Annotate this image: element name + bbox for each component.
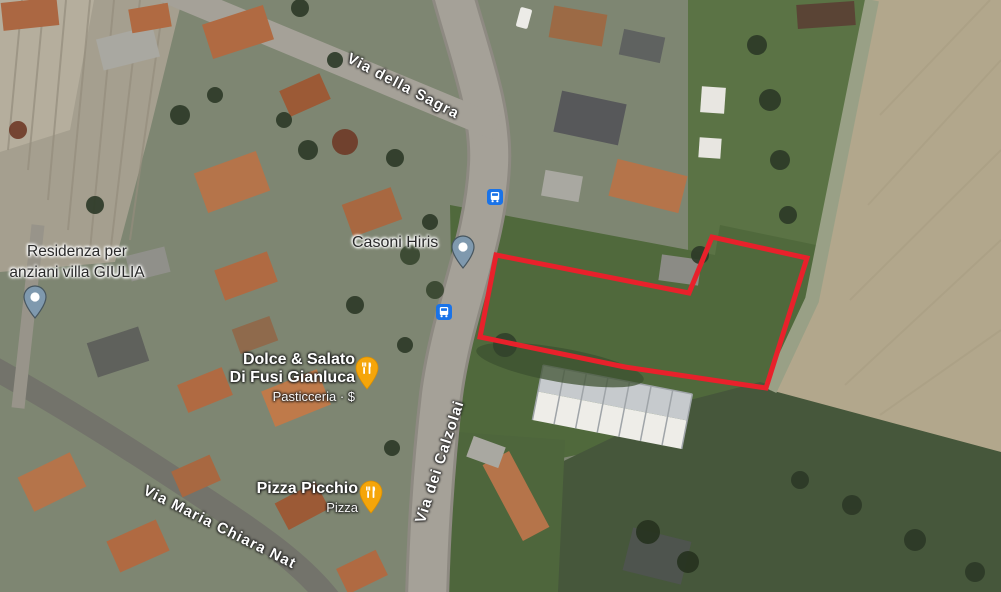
bus-stop-icon[interactable] [487, 189, 503, 205]
restaurant-pin-icon[interactable] [359, 480, 383, 514]
poi-name-line2: Di Fusi Gianluca [205, 369, 355, 387]
poi-category: Pasticceria · $ [205, 388, 355, 406]
place-pin-icon[interactable] [451, 235, 475, 269]
street-label-via-dei-calzolai: Via dei Calzolai [412, 398, 468, 525]
place-label-casoni-hiris[interactable]: Casoni Hiris [352, 234, 438, 252]
place-label-line1: Residenza per [0, 241, 154, 262]
satellite-map[interactable]: Via della Sagra Via dei Calzolai Via Mar… [0, 0, 1001, 592]
poi-name: Pizza Picchio [225, 480, 358, 498]
place-label-line2: anziani villa GIULIA [0, 262, 154, 283]
place-pin-icon[interactable] [23, 285, 47, 319]
poi-name-line1: Dolce & Salato [205, 351, 355, 369]
map-overlay: Via della Sagra Via dei Calzolai Via Mar… [0, 0, 1001, 592]
street-label-via-della-sagra: Via della Sagra [344, 50, 462, 123]
poi-category: Pizza [225, 499, 358, 517]
poi-label-dolce-salato[interactable]: Dolce & Salato Di Fusi Gianluca Pasticce… [205, 351, 355, 406]
place-label-residenza[interactable]: Residenza per anziani villa GIULIA [0, 241, 154, 283]
restaurant-pin-icon[interactable] [355, 356, 379, 390]
poi-label-pizza-picchio[interactable]: Pizza Picchio Pizza [225, 480, 358, 517]
bus-stop-icon[interactable] [436, 304, 452, 320]
